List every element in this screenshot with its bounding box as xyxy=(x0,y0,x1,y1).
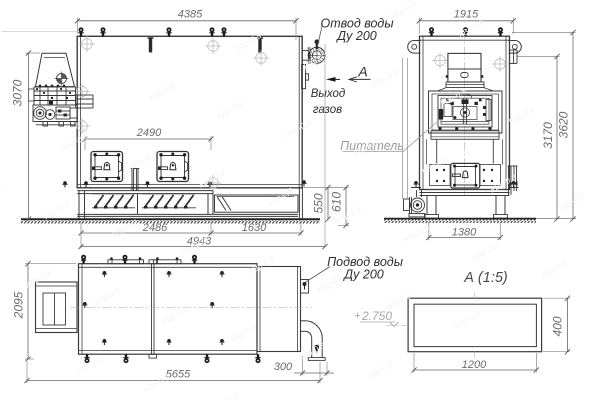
svg-text:300: 300 xyxy=(274,361,293,373)
svg-text:1200: 1200 xyxy=(462,359,487,371)
svg-text:1380: 1380 xyxy=(452,227,477,239)
svg-text:1915: 1915 xyxy=(454,9,479,21)
svg-text:1630: 1630 xyxy=(242,222,267,234)
svg-text:Ду 200: Ду 200 xyxy=(342,268,384,282)
svg-text:2486: 2486 xyxy=(142,222,168,234)
svg-text:3070: 3070 xyxy=(11,79,25,106)
svg-text:3170: 3170 xyxy=(541,122,555,149)
svg-text:Ду 200: Ду 200 xyxy=(335,29,377,43)
svg-text:4385: 4385 xyxy=(178,9,203,21)
svg-text:2095: 2095 xyxy=(12,291,26,319)
svg-text:2490: 2490 xyxy=(136,127,162,139)
svg-text:610: 610 xyxy=(330,192,344,212)
svg-text:А (1:5): А (1:5) xyxy=(463,270,508,286)
svg-text:400: 400 xyxy=(551,316,565,336)
svg-text:газов: газов xyxy=(313,104,342,116)
svg-text:А: А xyxy=(357,64,367,80)
svg-text:3620: 3620 xyxy=(557,111,571,138)
svg-text:550: 550 xyxy=(312,193,326,213)
svg-text:Выход: Выход xyxy=(311,88,346,100)
